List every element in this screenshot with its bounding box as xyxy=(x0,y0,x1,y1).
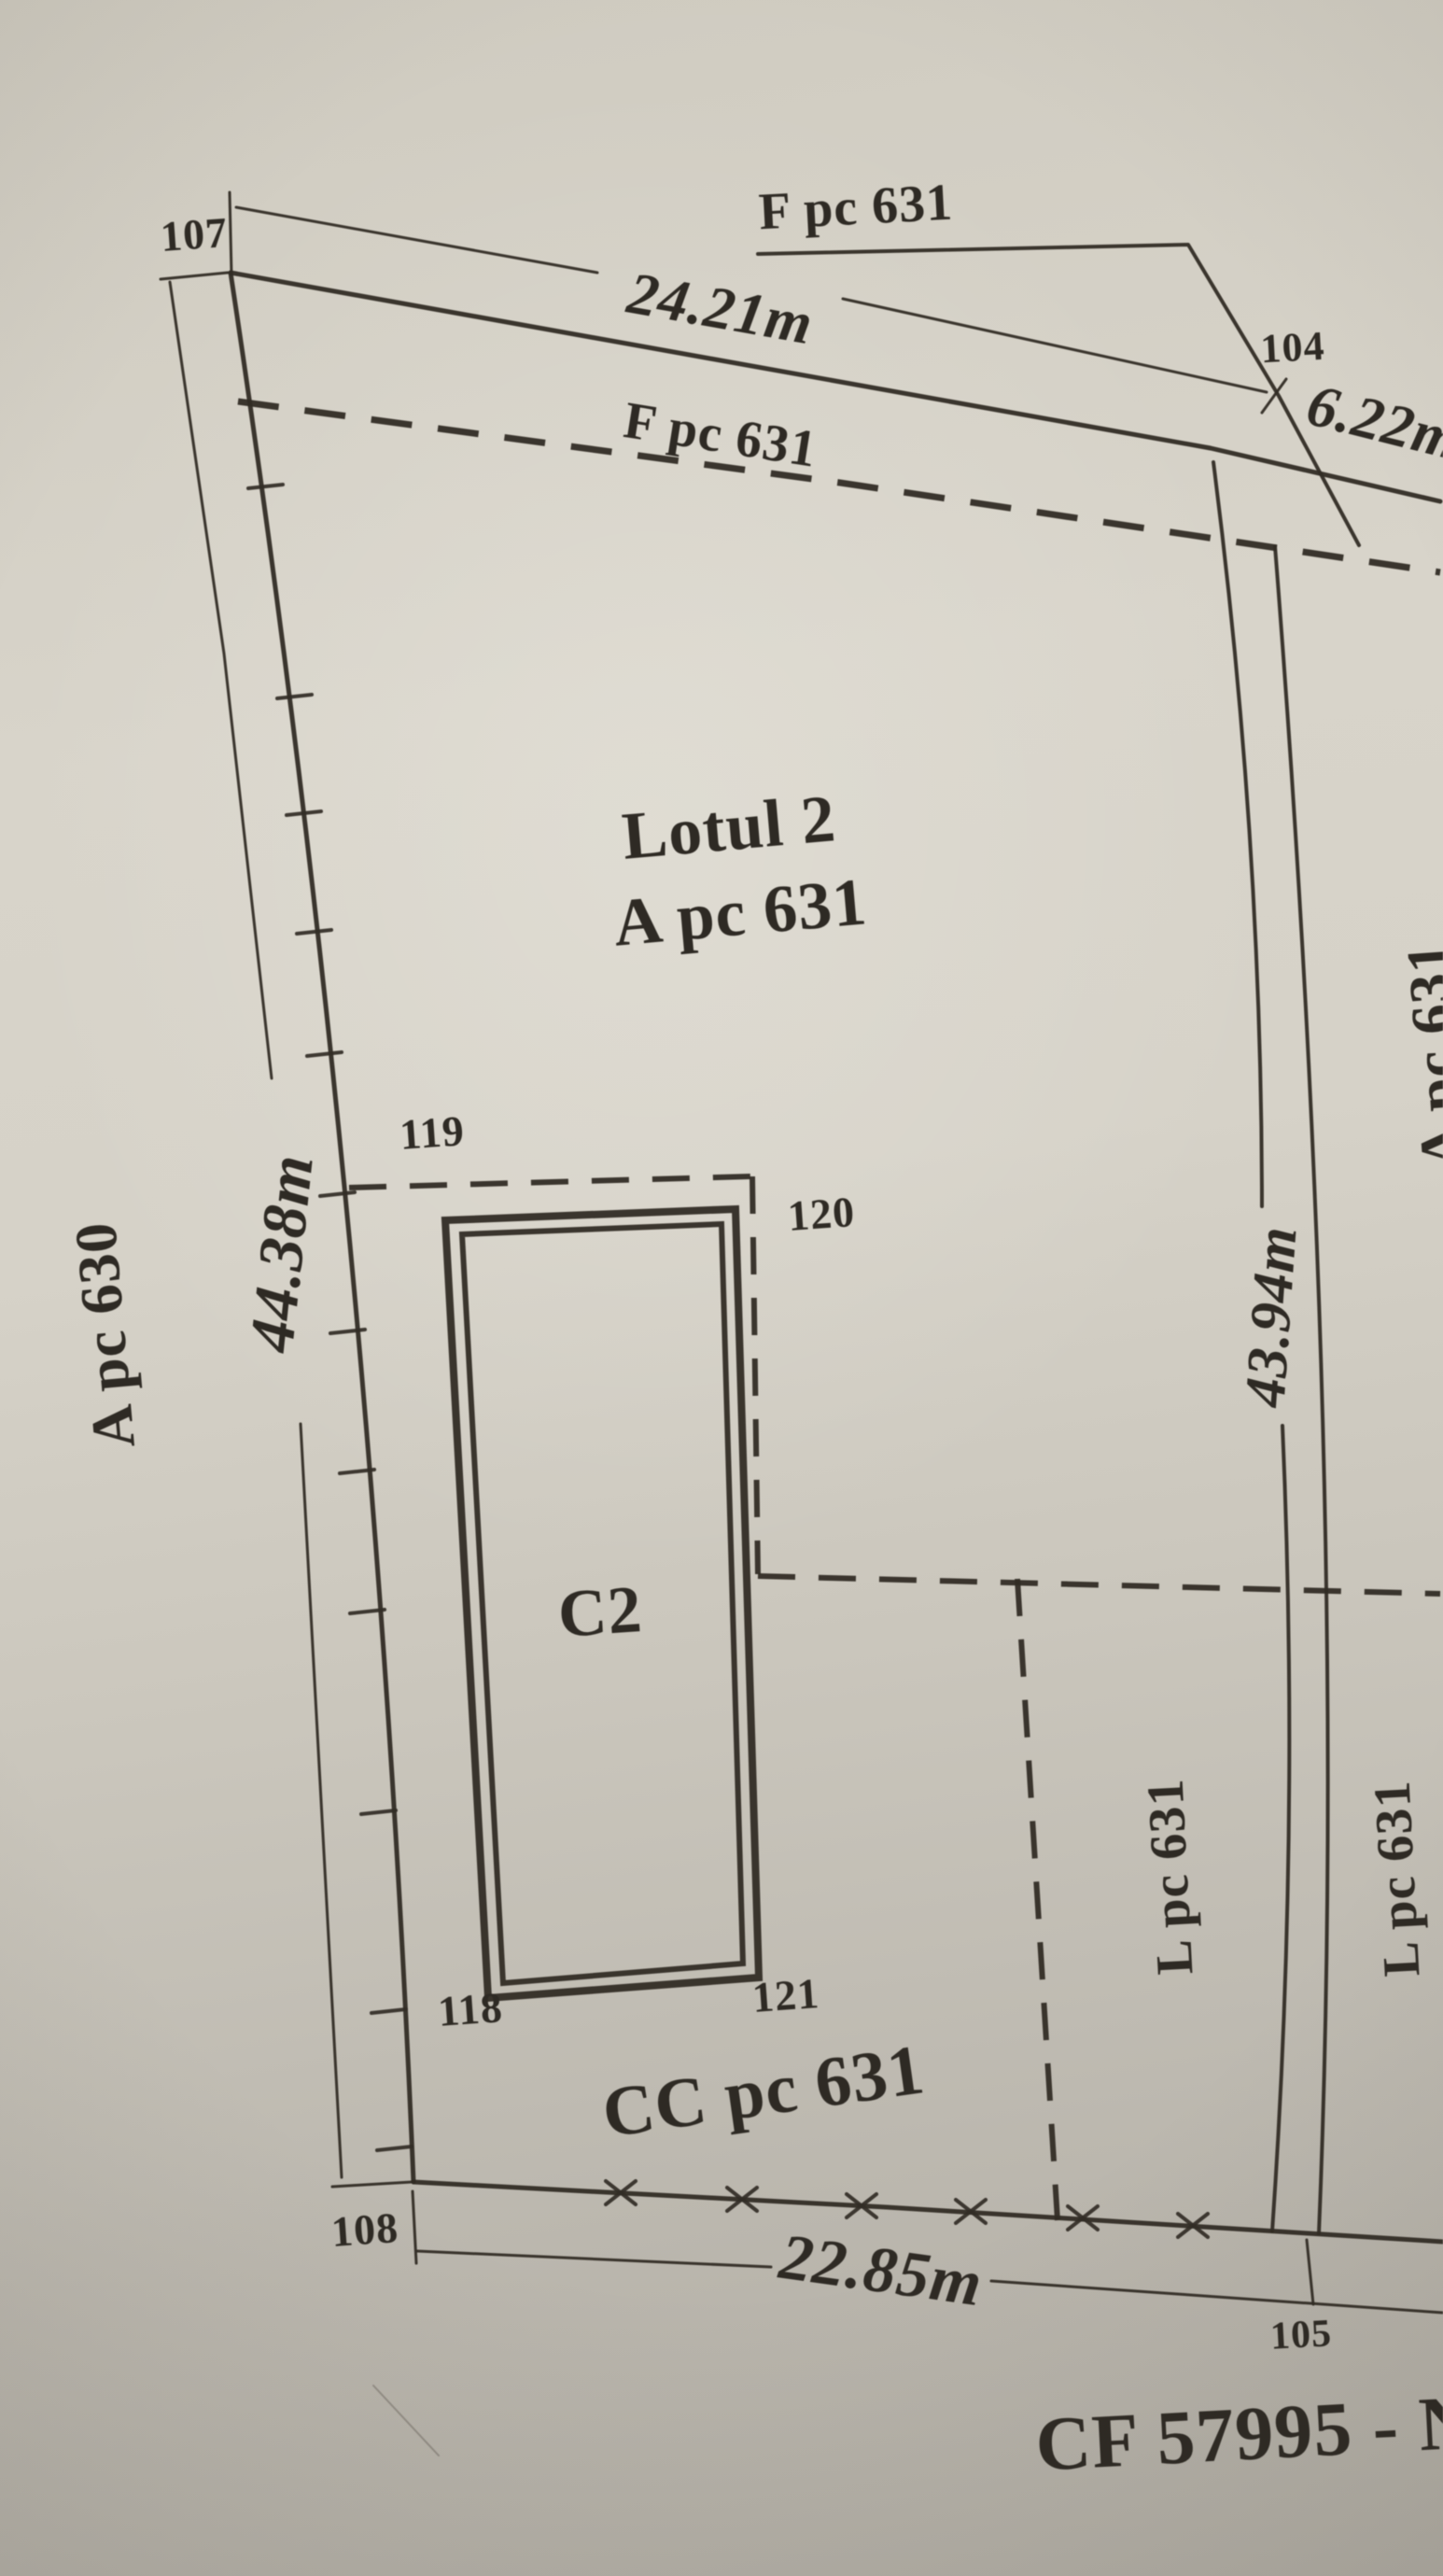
label-dim-43-94: 43.94m xyxy=(1233,1224,1309,1410)
label-point-105: 105 xyxy=(1269,2312,1333,2358)
label-dim-6-22: 6.22m xyxy=(1300,371,1443,472)
line-tick-105 xyxy=(1307,2240,1313,2304)
boundary-tick-2 xyxy=(287,811,321,815)
dashed-dash-120-down xyxy=(752,1176,758,1574)
label-parcel-a-631-right: A pc 631 xyxy=(1394,939,1443,1170)
line-dim-top-a xyxy=(236,207,597,273)
label-dim-44-38: 44.38m xyxy=(235,1151,327,1358)
boundary-tick-11 xyxy=(377,2147,412,2150)
label-point-120: 120 xyxy=(786,1188,856,1240)
line-dim-left-tick-top xyxy=(161,273,228,279)
line-boundary-north xyxy=(231,273,1440,501)
line-leader-f-and-6-22 xyxy=(758,245,1359,545)
boundary-tick-5 xyxy=(320,1192,355,1196)
label-dim-24-21: 24.21m xyxy=(622,260,818,358)
survey-plan-drawing: 107F pc 63124.21m1046.22mF pc 631Lotul 2… xyxy=(0,0,1443,2576)
label-lot-parcel: A pc 631 xyxy=(610,864,870,960)
label-parcel-f-top: F pc 631 xyxy=(757,174,954,242)
boundary-tick-1 xyxy=(277,695,312,698)
label-point-119: 119 xyxy=(399,1106,467,1159)
label-parcel-l-right: L pc 631 xyxy=(1364,1779,1432,1978)
label-parcel-l-left: L pc 631 xyxy=(1137,1777,1205,1976)
line-boundary-south xyxy=(413,2182,1443,2242)
label-point-121: 121 xyxy=(750,1969,820,2021)
label-building-label: C2 xyxy=(555,1571,644,1652)
line-strip-east-1a xyxy=(1213,462,1262,1206)
dashed-dash-f-boundary xyxy=(238,401,1440,572)
label-point-107: 107 xyxy=(159,208,229,260)
boundary-tick-0 xyxy=(248,485,283,488)
label-parcel-a-630: A pc 630 xyxy=(62,1219,147,1451)
line-tick-104 xyxy=(1262,379,1286,413)
label-dim-22-85: 22.85m xyxy=(775,2221,988,2321)
label-lot-title: Lotul 2 xyxy=(619,781,838,874)
line-strip-east-1b xyxy=(1272,1426,1289,2231)
dashed-dash-119-120 xyxy=(349,1176,752,1188)
dashed-dash-cc-l-horiz xyxy=(758,1576,1440,1594)
label-point-118: 118 xyxy=(437,1983,505,2035)
boundary-tick-10 xyxy=(371,2009,406,2013)
line-dim-bottom-witness xyxy=(413,2191,416,2263)
label-point-108: 108 xyxy=(329,2203,399,2256)
line-dim-bottom-b xyxy=(991,2281,1443,2313)
line-dim-left-tick-bottom xyxy=(332,2182,412,2187)
line-dim-top-b xyxy=(843,299,1267,392)
boundary-tick-4 xyxy=(307,1052,342,1056)
dashed-dash-cc-l-vert xyxy=(1017,1579,1058,2220)
line-paper-scratch xyxy=(373,2386,439,2456)
line-dim-bottom-a xyxy=(417,2251,771,2267)
line-dim-top-end-tick xyxy=(230,192,231,274)
line-dim-left-b xyxy=(301,1424,342,2177)
boundary-tick-9 xyxy=(361,1810,396,1814)
label-point-104: 104 xyxy=(1259,323,1325,373)
cadastral-plan-photo: 107F pc 63124.21m1046.22mF pc 631Lotul 2… xyxy=(0,0,1443,2576)
boundary-tick-3 xyxy=(297,930,331,934)
label-parcel-cc: CC pc 631 xyxy=(597,2030,929,2152)
label-cf-number: CF 57995 - N xyxy=(1033,2379,1443,2487)
